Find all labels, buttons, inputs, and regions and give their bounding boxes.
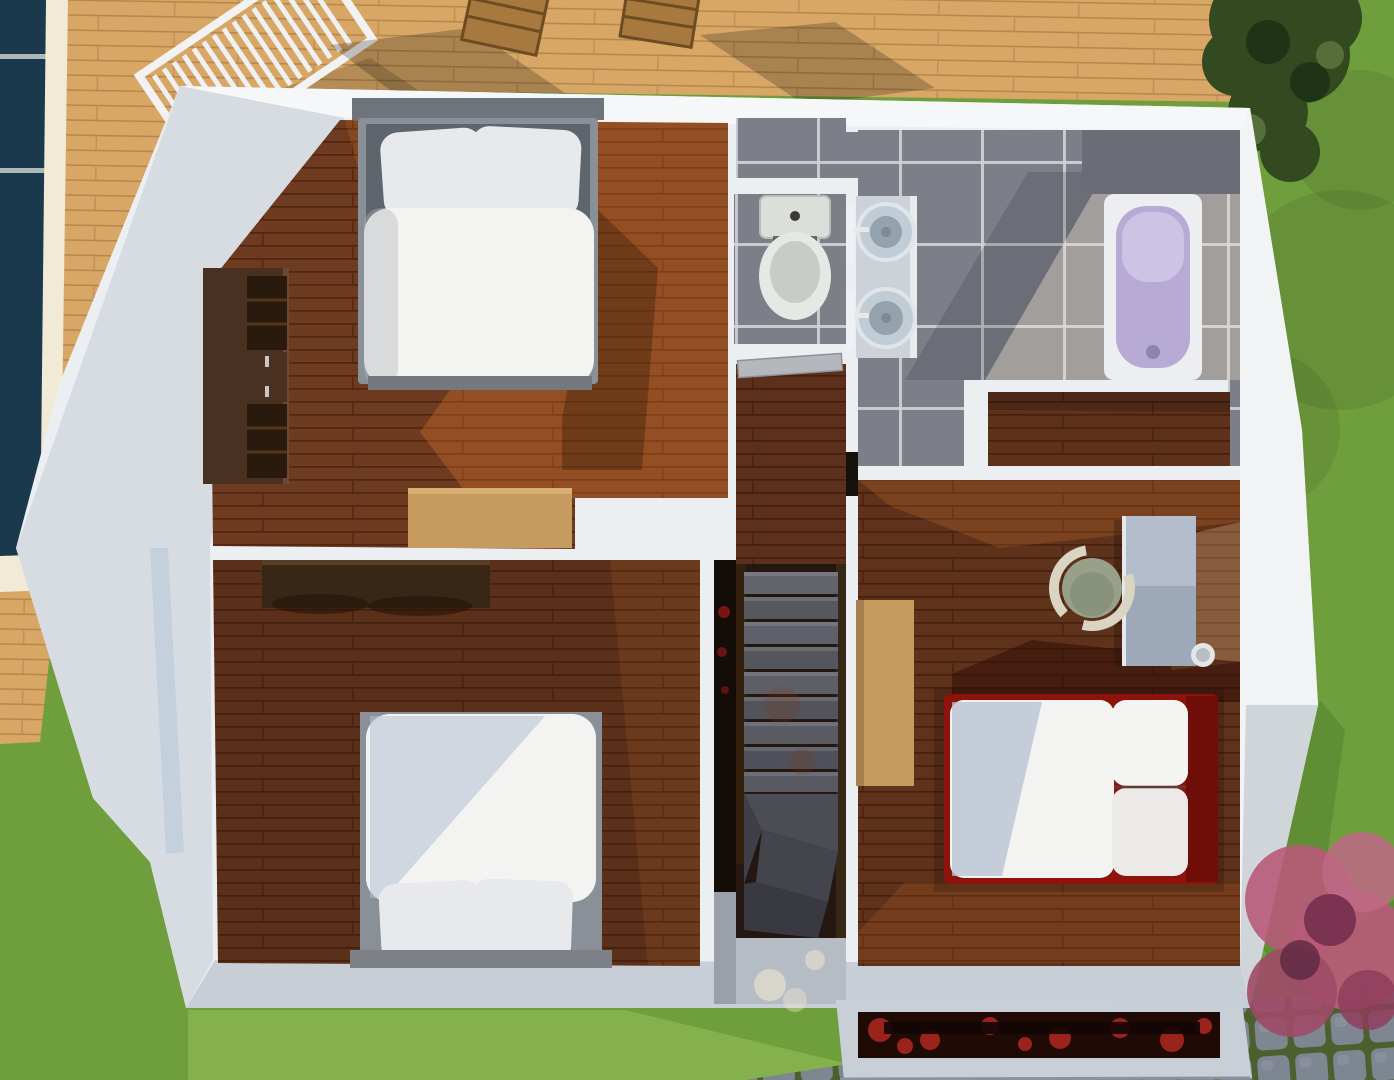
bed-3	[934, 688, 1224, 892]
winder-steps	[744, 794, 838, 938]
pink-shrub	[1245, 832, 1394, 1037]
pool-rail	[0, 54, 46, 59]
pillow	[1112, 788, 1188, 876]
bathtub	[1104, 194, 1202, 380]
mirror	[846, 292, 854, 350]
rug	[408, 488, 572, 548]
wardrobe-handle	[265, 386, 269, 397]
pillow	[1112, 700, 1188, 786]
pillow	[468, 125, 582, 219]
wardrobe-handle	[265, 356, 269, 367]
waste-bin	[1191, 643, 1215, 667]
tiled-wall-band	[1082, 130, 1240, 194]
headboard	[352, 98, 604, 120]
toilet	[759, 196, 831, 320]
hallway	[736, 353, 858, 564]
dresser	[262, 560, 490, 616]
sink	[854, 289, 915, 347]
bed-1	[352, 98, 604, 390]
headboard	[350, 950, 612, 968]
closet	[988, 392, 1230, 466]
pool-rail	[0, 168, 46, 173]
mirror	[846, 206, 854, 264]
flower-planter	[836, 1000, 1252, 1080]
duvet	[364, 208, 594, 386]
faucet	[854, 313, 869, 318]
bedroom-3	[856, 480, 1240, 966]
floor-plan-render	[0, 0, 1394, 1080]
tan-sideboard	[856, 600, 914, 786]
staircase	[714, 560, 846, 1012]
faucet	[854, 227, 869, 232]
wc	[734, 118, 858, 344]
wardrobe	[203, 268, 289, 484]
bed-2	[350, 712, 612, 968]
drain	[1146, 345, 1160, 359]
pillow	[471, 878, 574, 961]
bedroom-2	[213, 560, 700, 968]
vanity	[846, 196, 917, 358]
house	[16, 86, 1318, 1012]
headboard	[1186, 696, 1218, 882]
landing-edge	[714, 892, 736, 1004]
doorway-to-bedroom-3	[846, 452, 858, 496]
